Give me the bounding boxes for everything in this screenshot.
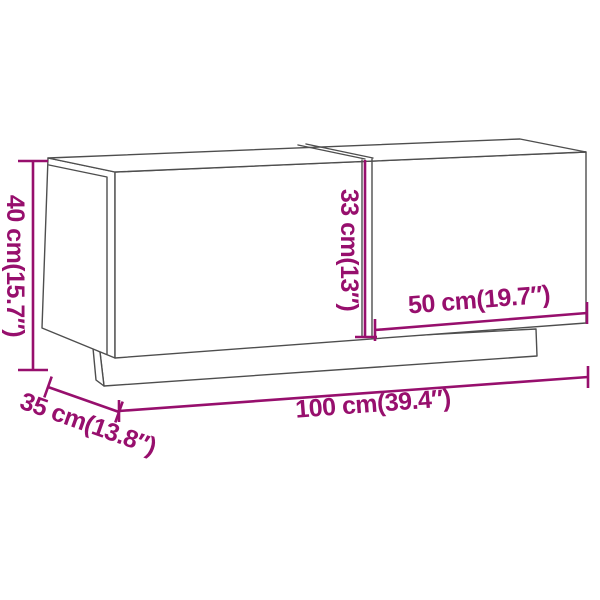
height-dimension-label: 40 cm(15.7″)	[1, 195, 29, 337]
cabinet-left-side-panel	[42, 158, 115, 358]
cabinet-drawing	[42, 139, 586, 386]
inner-height-dimension-label: 33 cm(13″)	[335, 189, 363, 311]
dimension-diagram: 40 cm(15.7″) 33 cm(13″) 50 cm(19.7″) 100…	[0, 0, 600, 600]
